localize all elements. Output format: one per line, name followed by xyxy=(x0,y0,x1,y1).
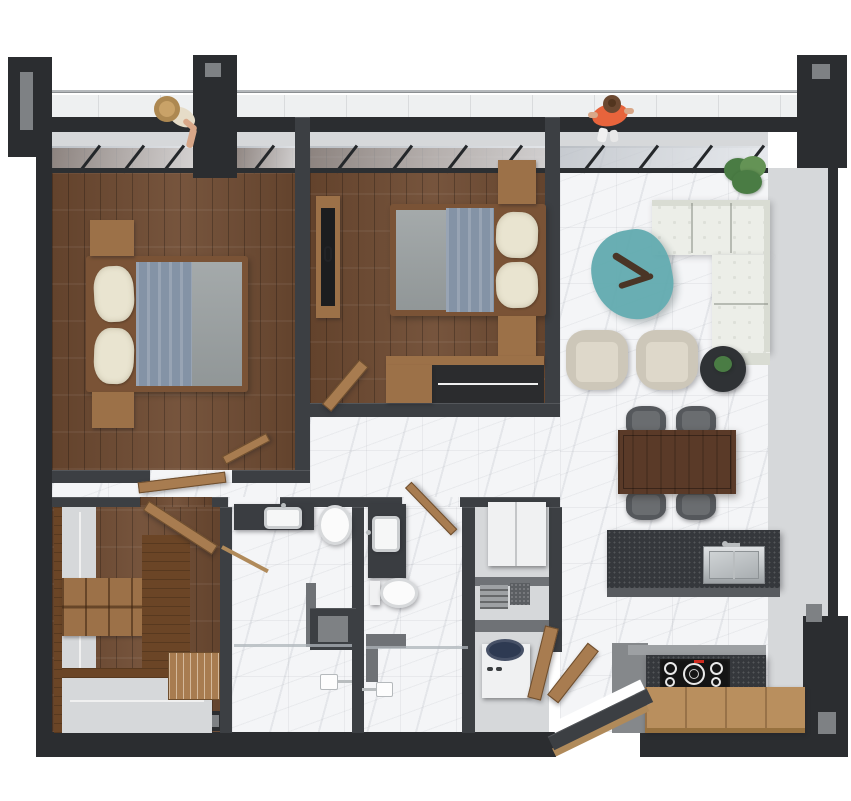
armchair-right-seat xyxy=(646,342,688,382)
exterior-wall-bottom-east xyxy=(640,732,808,757)
closet-cubby-shelves xyxy=(62,578,154,636)
bedroom1-pillow-a xyxy=(93,265,136,323)
bedroom2-console-handle xyxy=(324,246,332,262)
hallway-floor xyxy=(310,417,560,507)
bathroom1-shower-head xyxy=(320,674,338,690)
floor-plan xyxy=(0,0,851,801)
bedroom1-nightstand-north xyxy=(90,220,134,256)
cooktop-burner xyxy=(664,662,677,675)
refrigerator-door-seam xyxy=(515,502,517,566)
bedroom2-wardrobe-rail xyxy=(438,383,538,385)
bedroom2-wardrobe-top xyxy=(386,356,544,365)
bathroom1-shower-arm xyxy=(336,680,352,683)
person-straw-hat xyxy=(148,92,204,152)
bedroom1-blanket xyxy=(136,262,192,386)
kitchen-worktop-edge xyxy=(645,728,805,733)
bathroom2-sink xyxy=(372,516,400,552)
bedroom2-bench xyxy=(386,365,432,403)
dining-table-edge xyxy=(623,435,731,489)
kitchen-island-side xyxy=(607,588,780,597)
dining-chair-se xyxy=(676,490,716,520)
bedroom2-nightstand-north xyxy=(498,160,536,204)
closet-left-panel xyxy=(54,507,62,733)
kitchen-faucet xyxy=(726,543,740,547)
bedroom2-pillow-b xyxy=(495,261,539,308)
sofa-back-top xyxy=(652,200,770,206)
cooktop-burner-large xyxy=(683,663,705,685)
utility-shelf-lower xyxy=(475,620,549,632)
sofa-cushion-seam xyxy=(730,203,732,253)
bedroom2-pillow-a xyxy=(495,211,539,258)
bathroom2-toilet-tank xyxy=(370,581,380,605)
corner-plant-foliage xyxy=(732,170,762,194)
person-orange-shirt xyxy=(588,92,636,148)
sofa-cushion-seam xyxy=(714,303,768,305)
straw-hat xyxy=(154,96,180,122)
bedroom2-blanket xyxy=(446,208,494,312)
ventilation-grille xyxy=(480,585,508,609)
person-orange-shoe xyxy=(609,130,618,143)
bedroom1-pillow-b xyxy=(93,327,135,384)
cooktop-burner xyxy=(710,662,723,675)
bathroom2-shower-head xyxy=(376,682,393,697)
cooktop-burner xyxy=(711,677,721,687)
dining-chair-seat xyxy=(632,411,660,431)
sofa-cushion-seam xyxy=(691,203,693,253)
sofa-back-right xyxy=(764,202,770,352)
window-sill-bedroom1b xyxy=(237,168,295,173)
bathroom2-shower-arm xyxy=(362,688,376,691)
washing-machine-knob xyxy=(496,667,502,671)
wall-bedroom1-bedroom2 xyxy=(295,117,310,470)
person-orange-arm xyxy=(588,112,598,118)
wall-bedroom1-south-a xyxy=(52,470,150,483)
bathroom1-sink xyxy=(264,507,302,529)
closet-drawer-organizer xyxy=(168,652,220,700)
bathroom1-faucet xyxy=(281,503,286,508)
person-orange-hair-bun xyxy=(608,99,616,107)
bathroom2-toilet xyxy=(380,578,418,608)
corner-block-bottom-right-recess-a xyxy=(806,604,822,622)
person-orange-shoe xyxy=(597,127,609,143)
armchair-left-seat xyxy=(576,342,618,382)
dining-chair-sw xyxy=(626,490,666,520)
cooktop-burner xyxy=(665,677,675,687)
wall-closet-bathroom1 xyxy=(220,507,232,733)
corner-block-bottom-right xyxy=(803,616,848,757)
corner-block-top-right-recess xyxy=(812,64,830,79)
side-table-plant xyxy=(714,356,732,372)
dining-table xyxy=(618,430,736,494)
kitchen-worktop xyxy=(645,687,805,733)
bedroom2-nightstand-south xyxy=(498,316,536,356)
armchair-left xyxy=(566,330,628,390)
washing-machine-knob xyxy=(487,667,493,671)
bedroom1-mattress xyxy=(190,262,242,386)
closet-hanging-rod-bottom xyxy=(70,700,204,702)
bathroom1-niche-inner xyxy=(318,616,348,642)
refrigerator xyxy=(488,502,546,566)
bathroom2-partition-b xyxy=(366,648,378,682)
dining-chair-seat xyxy=(632,495,660,515)
person-orange-arm xyxy=(624,108,634,114)
ventilation-filter xyxy=(510,583,530,605)
facade-pillar-mid-recess xyxy=(205,63,221,77)
corner-block-bottom-right-recess-b xyxy=(818,712,836,734)
cooktop-display xyxy=(694,660,704,663)
bedroom2-mattress xyxy=(396,210,446,310)
utility-frame-left xyxy=(462,507,475,733)
sofa-top-section xyxy=(652,200,770,255)
kitchen-counter-back-edge xyxy=(628,645,766,655)
wall-bedroom2-south xyxy=(310,403,560,417)
exterior-wall-right xyxy=(828,168,838,616)
kitchen-faucet-base xyxy=(722,541,728,547)
wall-bedroom1-south-b xyxy=(232,470,310,483)
bathroom1-toilet xyxy=(318,505,352,545)
bedroom1-nightstand-south xyxy=(92,392,134,428)
bathroom2-faucet xyxy=(366,530,371,535)
armchair-right xyxy=(636,330,698,390)
balcony-railing xyxy=(18,90,818,93)
washing-machine-lid xyxy=(486,639,524,661)
bathroom2-shower-glass xyxy=(366,646,468,649)
bathroom1-shower-glass xyxy=(234,644,352,647)
wall-bedroom2-living xyxy=(545,117,560,417)
kitchen-sink-divider xyxy=(733,551,735,579)
dining-chair-seat xyxy=(682,495,710,515)
exterior-wall-left xyxy=(36,117,52,757)
dining-chair-seat xyxy=(682,411,710,431)
corner-block-top-left-recess xyxy=(20,72,33,130)
exterior-wall-bottom-west xyxy=(36,732,556,757)
window-sill-bedroom1 xyxy=(52,168,193,173)
person-straw-hat-leg xyxy=(186,127,198,148)
